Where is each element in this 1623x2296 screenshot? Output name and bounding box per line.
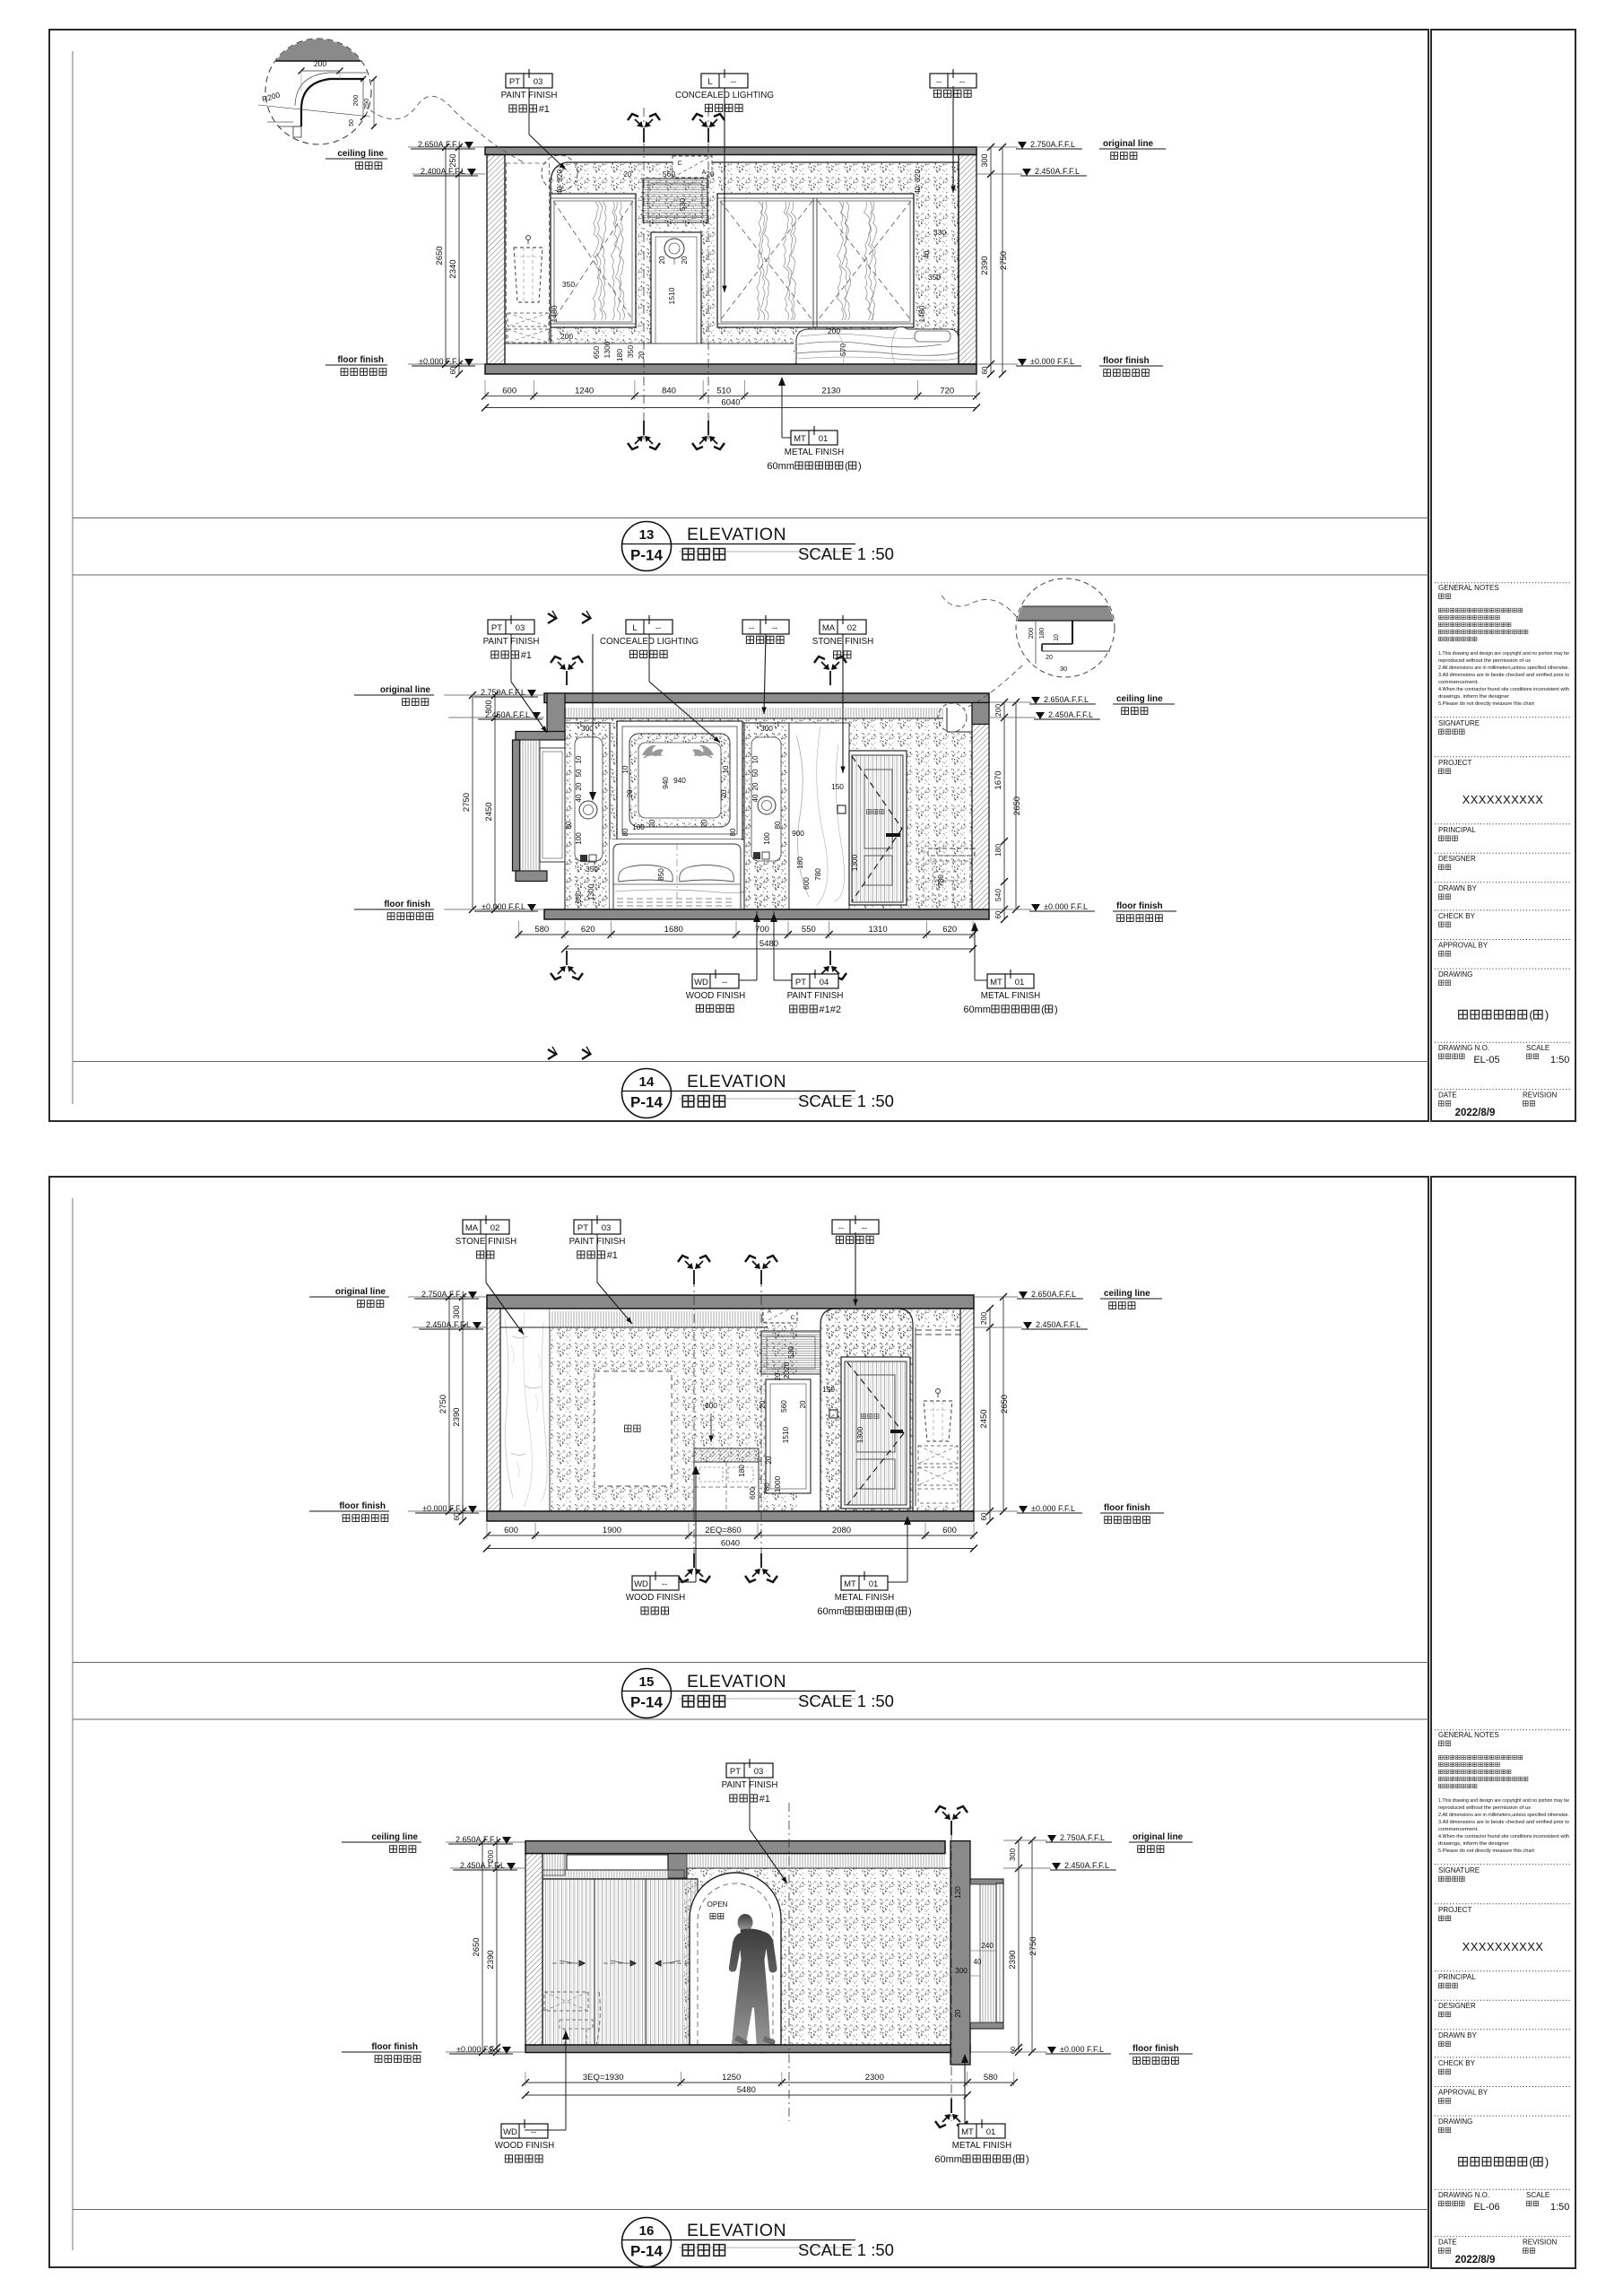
svg-text:350: 350: [586, 865, 598, 874]
svg-text:2.450A.F.F.L: 2.450A.F.F.L: [1048, 710, 1093, 719]
svg-text:2390: 2390: [1008, 1950, 1018, 1969]
svg-text:1300: 1300: [850, 854, 859, 871]
svg-text:A: A: [768, 1309, 772, 1315]
svg-text:APPROVAL BY: APPROVAL BY: [1438, 2089, 1488, 2097]
svg-text:3EQ=1930: 3EQ=1930: [583, 2073, 624, 2083]
svg-text:03: 03: [602, 1223, 612, 1233]
svg-text:40: 40: [923, 250, 931, 258]
svg-text:): ): [1545, 2155, 1549, 2169]
svg-text:60: 60: [994, 910, 1002, 918]
svg-text:350: 350: [562, 280, 575, 289]
svg-text:350: 350: [928, 273, 941, 282]
svg-text:P-14: P-14: [630, 1694, 663, 1711]
svg-text:2750: 2750: [999, 251, 1009, 270]
svg-text:20: 20: [720, 789, 728, 797]
svg-text:20: 20: [638, 351, 646, 359]
svg-text:commencement.: commencement.: [1438, 1827, 1479, 1832]
svg-text:1510: 1510: [781, 1426, 790, 1443]
svg-text:MA: MA: [822, 623, 836, 633]
svg-text:1480: 1480: [550, 305, 559, 322]
svg-text:(: (: [1529, 2155, 1533, 2169]
svg-text:P-14: P-14: [630, 1094, 663, 1111]
svg-text:WD: WD: [503, 2127, 517, 2137]
svg-text:GENERAL NOTES: GENERAL NOTES: [1438, 584, 1499, 592]
svg-text:1.This drawing and design are: 1.This drawing and design are copyright …: [1438, 1798, 1569, 1804]
svg-text:--: --: [531, 2127, 536, 2137]
svg-text:2340: 2340: [448, 259, 458, 278]
svg-text:200: 200: [828, 326, 840, 335]
svg-text:2080: 2080: [832, 1526, 851, 1535]
svg-text:80: 80: [621, 828, 629, 836]
svg-text:200: 200: [994, 704, 1002, 717]
svg-text:50: 50: [751, 769, 759, 777]
svg-text:2.650A.F.F.L: 2.650A.F.F.L: [1031, 1290, 1076, 1299]
svg-text:6040: 6040: [721, 398, 740, 408]
svg-text:80: 80: [729, 828, 737, 836]
svg-text:03: 03: [754, 1767, 764, 1777]
svg-text:SCALE 1 :50: SCALE 1 :50: [798, 2240, 894, 2259]
svg-text:250: 250: [362, 99, 370, 110]
svg-text:): ): [908, 1606, 912, 1617]
svg-text:570: 570: [838, 344, 847, 356]
svg-text:180: 180: [1037, 628, 1046, 639]
svg-text:SCALE 1 :50: SCALE 1 :50: [798, 1091, 894, 1110]
svg-text:DRAWN BY: DRAWN BY: [1438, 2031, 1477, 2039]
svg-text:floor finish: floor finish: [1116, 901, 1163, 911]
svg-text:--: --: [655, 623, 661, 633]
svg-text:1.This drawing and design are: 1.This drawing and design are copyright …: [1438, 651, 1569, 657]
svg-text:2.650A.F.F.L: 2.650A.F.F.L: [456, 1835, 500, 1844]
svg-text:120: 120: [953, 1886, 962, 1899]
svg-text:reproduced without the permiss: reproduced without the permission of us: [1438, 1805, 1531, 1811]
svg-text:1250: 1250: [722, 2073, 741, 2083]
svg-text:MA: MA: [465, 1223, 479, 1233]
svg-text:2.750A.F.F.L: 2.750A.F.F.L: [421, 1290, 466, 1299]
svg-text:PRINCIPAL: PRINCIPAL: [1438, 1973, 1476, 1981]
svg-text:200: 200: [560, 332, 573, 341]
svg-text:200: 200: [352, 95, 360, 107]
svg-text:--: --: [772, 623, 777, 633]
svg-text:drawings, inform the designer: drawings, inform the designer: [1438, 694, 1509, 700]
svg-text:2300: 2300: [865, 2073, 884, 2083]
svg-text:5.Please do not directly measu: 5.Please do not directly measure this ch…: [1438, 701, 1534, 707]
svg-text:WD: WD: [694, 978, 708, 987]
svg-text:50: 50: [575, 769, 583, 777]
svg-text:10: 10: [621, 765, 629, 773]
svg-text:DRAWING N.O.: DRAWING N.O.: [1438, 2191, 1489, 2199]
svg-text:650: 650: [592, 346, 601, 359]
svg-text:320: 320: [555, 170, 564, 182]
svg-text:350: 350: [626, 345, 635, 358]
svg-text:±0.000 F.F.L: ±0.000 F.F.L: [1030, 357, 1074, 366]
svg-text:#1: #1: [607, 1250, 618, 1261]
svg-text:floor finish: floor finish: [384, 900, 430, 909]
svg-text:L: L: [632, 623, 637, 633]
svg-text:1510: 1510: [667, 287, 676, 304]
svg-text:--: --: [862, 1223, 867, 1233]
svg-text:±0.000 F.F.L: ±0.000 F.F.L: [1060, 2045, 1104, 2054]
svg-text:REVISION: REVISION: [1523, 1091, 1557, 1100]
svg-text:60: 60: [449, 366, 457, 374]
svg-text:floor finish: floor finish: [371, 2042, 418, 2052]
svg-text:1300: 1300: [586, 883, 595, 900]
svg-text:±0.000 F.F.L: ±0.000 F.F.L: [419, 357, 463, 366]
svg-text:REVISION: REVISION: [1523, 2239, 1557, 2247]
svg-text:APPROVAL BY: APPROVAL BY: [1438, 942, 1488, 950]
svg-text:20: 20: [1046, 655, 1053, 661]
svg-text:2650: 2650: [1012, 796, 1022, 815]
svg-text:14: 14: [639, 1074, 655, 1090]
svg-text:180: 180: [795, 857, 804, 869]
svg-text:): ): [1545, 1008, 1549, 1022]
svg-text:1240: 1240: [575, 387, 594, 396]
svg-text:20: 20: [774, 1372, 782, 1380]
svg-text:180: 180: [615, 349, 624, 361]
svg-text:--: --: [722, 978, 727, 987]
svg-text:CHECK BY: CHECK BY: [1438, 2059, 1476, 2067]
svg-text:320: 320: [913, 170, 922, 182]
svg-text:03: 03: [516, 623, 525, 633]
svg-text:C: C: [677, 161, 681, 167]
svg-text:20: 20: [954, 2009, 962, 2017]
svg-text:MT: MT: [794, 434, 806, 444]
svg-text:530: 530: [786, 1346, 795, 1359]
svg-text:01: 01: [1015, 978, 1025, 987]
svg-text:20: 20: [799, 1400, 807, 1408]
svg-text:60mm: 60mm: [934, 2154, 962, 2165]
svg-text:3.All dimensions are to besite: 3.All dimensions are to besite checked a…: [1438, 1820, 1569, 1825]
svg-text:780: 780: [813, 868, 822, 881]
svg-text:40: 40: [556, 186, 564, 194]
svg-text:±0.000 F.F.L: ±0.000 F.F.L: [422, 1504, 466, 1513]
svg-text:DRAWING: DRAWING: [1438, 2118, 1472, 2126]
svg-text:GENERAL NOTES: GENERAL NOTES: [1438, 1731, 1499, 1739]
svg-text:20: 20: [707, 170, 715, 178]
svg-text:P-14: P-14: [630, 547, 663, 564]
svg-text:620: 620: [581, 925, 595, 935]
svg-text:60: 60: [981, 366, 989, 374]
svg-text:1300: 1300: [855, 1426, 864, 1443]
svg-text:2020: 2020: [782, 1361, 791, 1378]
svg-text:ceiling line: ceiling line: [1116, 694, 1163, 704]
svg-text:40: 40: [751, 794, 759, 802]
svg-text:15: 15: [639, 1674, 655, 1690]
svg-text:2130: 2130: [821, 387, 840, 396]
svg-text:530: 530: [678, 198, 687, 211]
svg-text:ceiling line: ceiling line: [337, 149, 384, 159]
svg-text:20: 20: [624, 170, 632, 178]
svg-text:3.All dimensions are to besite: 3.All dimensions are to besite checked a…: [1438, 673, 1569, 678]
svg-text:150: 150: [822, 1385, 835, 1394]
svg-text:10: 10: [1054, 634, 1060, 641]
svg-text:original line: original line: [1133, 1832, 1184, 1842]
svg-text:2.All dimensions are in millim: 2.All dimensions are in millimeters,unle…: [1438, 665, 1569, 671]
svg-text:1680: 1680: [664, 925, 683, 935]
svg-text:original line: original line: [1103, 139, 1154, 149]
svg-text:13: 13: [639, 527, 655, 543]
svg-text:10: 10: [722, 765, 730, 773]
svg-text:DATE: DATE: [1438, 1091, 1457, 1100]
svg-text:(: (: [1529, 1008, 1533, 1022]
svg-text:300: 300: [452, 1305, 461, 1318]
svg-text:2.650A.F.F.L: 2.650A.F.F.L: [1044, 695, 1089, 704]
svg-text:20: 20: [626, 789, 634, 797]
svg-text:200: 200: [314, 59, 326, 68]
svg-text:5.Please do not directly measu: 5.Please do not directly measure this ch…: [1438, 1848, 1534, 1854]
svg-text:780: 780: [762, 1483, 771, 1495]
svg-text:SCALE 1 :50: SCALE 1 :50: [798, 544, 894, 563]
svg-text:40: 40: [974, 1958, 982, 1966]
svg-text:940: 940: [661, 777, 670, 789]
svg-text:METAL FINISH: METAL FINISH: [981, 991, 1040, 1001]
svg-text:60: 60: [1009, 2047, 1017, 2054]
svg-text:2750: 2750: [1028, 1936, 1038, 1955]
svg-text:600: 600: [504, 1526, 518, 1535]
svg-text:20: 20: [700, 819, 708, 827]
svg-text:P-14: P-14: [630, 2243, 663, 2260]
svg-text:±0.000 F.F.L: ±0.000 F.F.L: [1031, 1504, 1075, 1513]
svg-text:60mm: 60mm: [767, 461, 794, 472]
svg-text:04: 04: [820, 978, 829, 987]
svg-text:1670: 1670: [994, 770, 1003, 789]
svg-text:±0.000 F.F.L: ±0.000 F.F.L: [1044, 902, 1088, 911]
svg-text:L: L: [707, 77, 712, 87]
svg-text:PROJECT: PROJECT: [1438, 1906, 1471, 1914]
svg-text:WOOD FINISH: WOOD FINISH: [495, 2141, 554, 2151]
svg-text:510: 510: [716, 387, 731, 396]
svg-text:CHECK BY: CHECK BY: [1438, 912, 1476, 920]
svg-text:PT: PT: [509, 77, 520, 87]
svg-text:--: --: [936, 77, 942, 87]
svg-text:600: 600: [705, 1401, 717, 1410]
svg-text:floor finish: floor finish: [1133, 2044, 1179, 2054]
svg-text:720: 720: [940, 387, 954, 396]
svg-text:--: --: [838, 1223, 844, 1233]
svg-text:250: 250: [448, 153, 457, 167]
svg-text:2390: 2390: [486, 1950, 496, 1969]
svg-text:4.When the contractor found si: 4.When the contractor found site conditi…: [1438, 1834, 1569, 1839]
svg-text:MT: MT: [961, 2127, 974, 2137]
svg-text:(: (: [1041, 1004, 1045, 1015]
svg-text:600: 600: [748, 1487, 757, 1500]
svg-text:580: 580: [984, 2073, 998, 2083]
svg-text:#1: #1: [521, 650, 532, 661]
svg-text:40: 40: [575, 794, 583, 802]
svg-text:PAINT FINISH: PAINT FINISH: [787, 991, 844, 1001]
svg-text:20: 20: [575, 782, 583, 790]
svg-text:drawings, inform the designer: drawings, inform the designer: [1438, 1841, 1509, 1847]
svg-text:560: 560: [663, 170, 675, 178]
svg-text:4.When the contractor found si: 4.When the contractor found site conditi…: [1438, 687, 1569, 692]
svg-text:40: 40: [914, 186, 922, 194]
svg-text:2.400A.F.F.L: 2.400A.F.F.L: [421, 167, 465, 176]
svg-text:(: (: [895, 1606, 898, 1617]
svg-text:PT: PT: [795, 978, 806, 987]
svg-text:02: 02: [847, 623, 857, 633]
svg-text:±0.000 F.F.L: ±0.000 F.F.L: [456, 2045, 500, 2054]
svg-text:20: 20: [658, 256, 666, 264]
svg-text:940: 940: [673, 776, 686, 785]
svg-text:2750: 2750: [438, 1395, 448, 1413]
svg-text:--: --: [749, 623, 754, 633]
svg-text:--: --: [731, 77, 736, 87]
svg-text:): ): [1055, 1004, 1058, 1015]
svg-text:1900: 1900: [603, 1526, 621, 1535]
svg-text:SCALE: SCALE: [1526, 1044, 1549, 1052]
svg-text:620: 620: [942, 925, 957, 935]
svg-text:330: 330: [933, 228, 946, 237]
svg-text:2650: 2650: [1000, 1395, 1010, 1413]
svg-text:600: 600: [802, 877, 811, 890]
svg-text:SIGNATURE: SIGNATURE: [1438, 719, 1480, 727]
svg-text:): ): [1026, 2154, 1029, 2165]
svg-text:300: 300: [1008, 1848, 1017, 1861]
svg-text:2390: 2390: [980, 256, 990, 274]
svg-text:2650: 2650: [472, 1937, 482, 1956]
svg-text:02: 02: [490, 1223, 500, 1233]
svg-text:(: (: [845, 461, 848, 472]
svg-text:2.All dimensions are in millim: 2.All dimensions are in millimeters,unle…: [1438, 1813, 1569, 1818]
svg-text:floor finish: floor finish: [339, 1501, 386, 1511]
svg-text:840: 840: [662, 387, 676, 396]
svg-text:10: 10: [575, 755, 583, 763]
svg-text:PT: PT: [577, 1223, 588, 1233]
svg-text:original line: original line: [380, 685, 431, 695]
svg-text:560: 560: [779, 1400, 788, 1413]
svg-text:#1: #1: [759, 1794, 770, 1805]
svg-text:580: 580: [534, 925, 549, 935]
svg-text:--: --: [959, 77, 965, 87]
svg-text:WOOD FINISH: WOOD FINISH: [626, 1593, 685, 1603]
svg-text:600: 600: [942, 1526, 957, 1535]
svg-text:300: 300: [980, 153, 989, 167]
svg-text:2.450A.F.F.L: 2.450A.F.F.L: [1035, 167, 1080, 176]
svg-text:MT: MT: [844, 1579, 856, 1589]
svg-text:SCALE: SCALE: [1526, 2191, 1549, 2199]
svg-text:60mm: 60mm: [963, 1004, 991, 1015]
svg-text:2650: 2650: [435, 246, 445, 265]
svg-text:original line: original line: [335, 1287, 386, 1297]
svg-text:DATE: DATE: [1438, 2239, 1457, 2247]
svg-text:150: 150: [831, 782, 844, 791]
svg-text:ELEVATION: ELEVATION: [687, 2221, 786, 2240]
svg-text:±0.000 F.F.L: ±0.000 F.F.L: [482, 902, 525, 911]
svg-text:2.450A.F.F.L: 2.450A.F.F.L: [1064, 1861, 1109, 1870]
svg-text:550: 550: [802, 925, 816, 935]
svg-text:DESIGNER: DESIGNER: [1438, 855, 1476, 863]
svg-text:PRINCIPAL: PRINCIPAL: [1438, 826, 1476, 834]
svg-text:reproduced without the permiss: reproduced without the permission of us: [1438, 658, 1531, 664]
svg-text:METAL FINISH: METAL FINISH: [835, 1593, 894, 1603]
svg-text:20: 20: [751, 782, 759, 790]
svg-text:6040: 6040: [721, 1539, 740, 1549]
svg-text:60: 60: [980, 1512, 988, 1520]
svg-text:01: 01: [986, 2127, 996, 2137]
svg-text:EL-06: EL-06: [1473, 2202, 1499, 2213]
svg-text:DRAWN BY: DRAWN BY: [1438, 884, 1477, 892]
svg-text:16: 16: [639, 2223, 655, 2239]
svg-text:5480: 5480: [737, 2085, 756, 2095]
svg-text:1310: 1310: [868, 925, 887, 935]
svg-text:1:50: 1:50: [1550, 1055, 1569, 1065]
svg-text:100: 100: [574, 832, 583, 845]
svg-text:5480: 5480: [759, 939, 778, 949]
svg-text:300: 300: [581, 724, 594, 733]
svg-text:floor finish: floor finish: [1103, 356, 1150, 366]
svg-text:floor finish: floor finish: [337, 355, 384, 365]
svg-text:100: 100: [632, 822, 645, 831]
svg-text:2.450A.F.F.L: 2.450A.F.F.L: [1036, 1320, 1081, 1329]
svg-text:--: --: [662, 1579, 667, 1589]
svg-text:50: 50: [349, 119, 355, 126]
svg-text:(: (: [1012, 2154, 1016, 2165]
svg-text:DRAWING: DRAWING: [1438, 970, 1472, 978]
svg-text:C: C: [791, 1315, 795, 1321]
svg-text:850: 850: [656, 868, 665, 881]
svg-text:2EQ=860: 2EQ=860: [705, 1526, 741, 1535]
svg-text:650: 650: [574, 891, 583, 903]
svg-text:2390: 2390: [452, 1407, 462, 1426]
svg-text:1300: 1300: [603, 341, 612, 358]
svg-text:540: 540: [994, 889, 1002, 901]
svg-text:180: 180: [737, 1465, 746, 1477]
svg-text:SIGNATURE: SIGNATURE: [1438, 1866, 1480, 1874]
svg-text:2022/8/9: 2022/8/9: [1455, 2255, 1496, 2266]
svg-text:ELEVATION: ELEVATION: [687, 525, 786, 544]
svg-text:200: 200: [979, 1312, 988, 1325]
svg-text:180: 180: [994, 844, 1002, 857]
svg-text:WOOD FINISH: WOOD FINISH: [686, 991, 745, 1001]
svg-text:2450: 2450: [979, 1409, 989, 1428]
svg-text:60mm: 60mm: [817, 1606, 845, 1617]
svg-text:ELEVATION: ELEVATION: [687, 1672, 786, 1692]
svg-text:ceiling line: ceiling line: [1104, 1289, 1150, 1299]
svg-text:780: 780: [936, 874, 945, 887]
svg-text:XXXXXXXXXX: XXXXXXXXXX: [1462, 793, 1544, 806]
svg-text:600: 600: [502, 387, 516, 396]
svg-text:300: 300: [955, 1966, 968, 1975]
svg-text:20: 20: [648, 819, 656, 827]
svg-text:METAL FINISH: METAL FINISH: [785, 448, 844, 457]
svg-text:ELEVATION: ELEVATION: [687, 1072, 786, 1091]
svg-text:100: 100: [762, 832, 771, 845]
svg-text:2750: 2750: [462, 793, 472, 812]
svg-text:20: 20: [681, 256, 689, 264]
svg-text:floor finish: floor finish: [1104, 1503, 1150, 1513]
svg-text:01: 01: [819, 434, 829, 444]
svg-text:2.650A.F.F.L: 2.650A.F.F.L: [418, 140, 463, 149]
svg-text:PT: PT: [491, 623, 502, 633]
svg-text:80: 80: [565, 821, 573, 829]
svg-text:XXXXXXXXXX: XXXXXXXXXX: [1462, 1940, 1544, 1953]
svg-text:ceiling line: ceiling line: [371, 1832, 418, 1842]
svg-text:900: 900: [792, 829, 804, 838]
svg-text:03: 03: [534, 77, 543, 87]
svg-text:20: 20: [765, 1456, 773, 1464]
svg-text:OPEN: OPEN: [707, 1900, 728, 1909]
svg-text:300: 300: [760, 724, 773, 733]
svg-text:EL-05: EL-05: [1473, 1055, 1499, 1065]
svg-text:PT: PT: [730, 1767, 741, 1777]
svg-text:10: 10: [751, 755, 759, 763]
svg-text:20: 20: [759, 1400, 767, 1408]
svg-text:commencement.: commencement.: [1438, 680, 1479, 685]
svg-text:80: 80: [774, 821, 782, 829]
svg-text:2022/8/9: 2022/8/9: [1455, 1108, 1496, 1118]
svg-text:2.750A.F.F.L: 2.750A.F.F.L: [1060, 1833, 1105, 1842]
svg-text:SCALE 1 :50: SCALE 1 :50: [798, 1692, 894, 1710]
svg-text:METAL FINISH: METAL FINISH: [952, 2141, 1011, 2151]
